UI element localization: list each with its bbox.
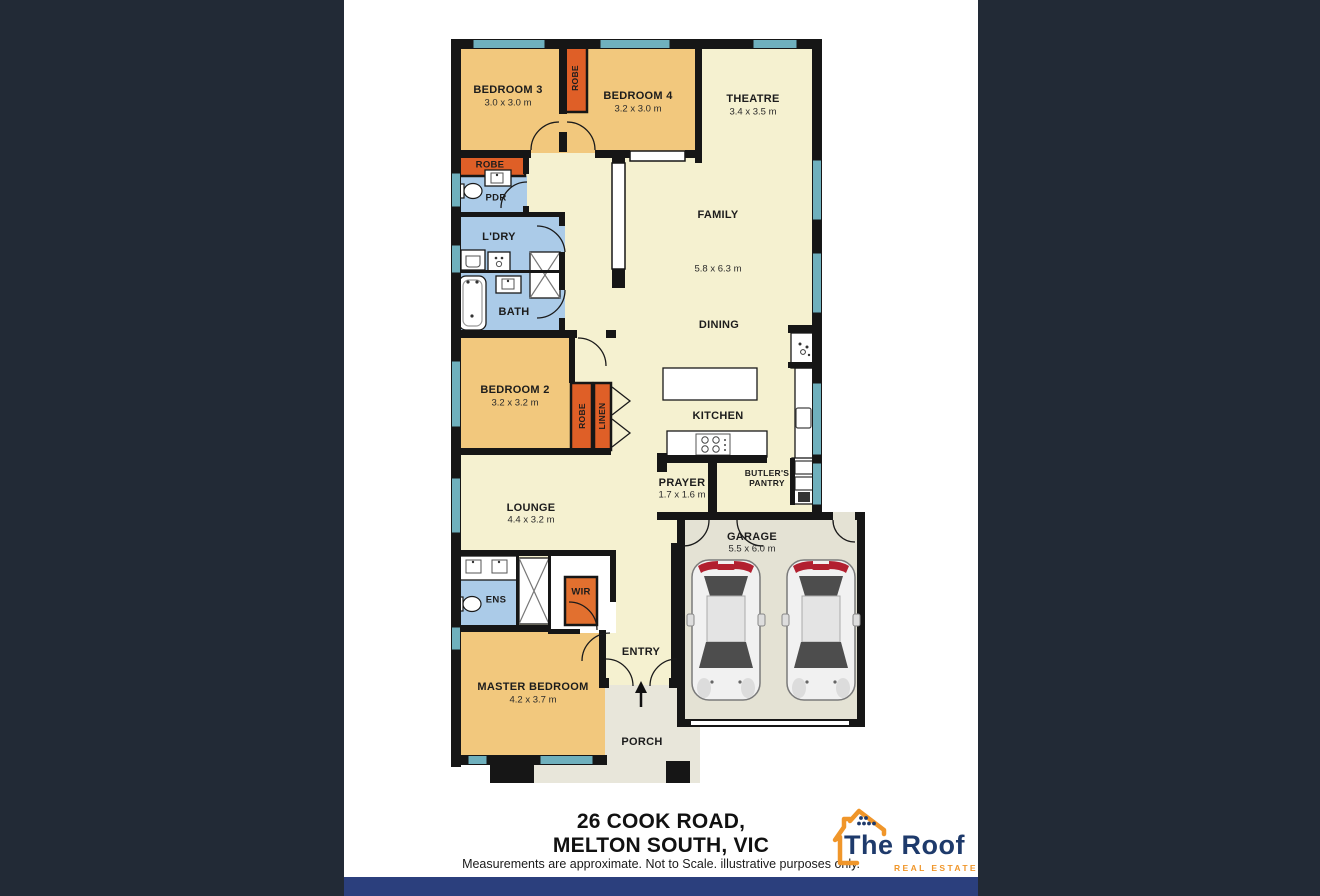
kitchen-side-counter [795,368,813,460]
window [600,40,670,49]
window [452,361,461,427]
floor-plan-screenshot: BEDROOM 3 3.0 x 3.0 m ROBE BEDROOM 4 3.2… [0,0,1320,896]
room-label-kitchen: KITCHEN [693,410,744,422]
floor-plan-page: BEDROOM 3 3.0 x 3.0 m ROBE BEDROOM 4 3.2… [344,0,978,896]
room-label-bath: BATH [499,306,530,318]
room-label-bedroom4: BEDROOM 4 [603,90,672,102]
room-dims-lounge: 4.4 x 3.2 m [508,515,555,526]
window [540,756,593,765]
closet-label-linen: LINEN [597,403,607,430]
room-label-lounge: LOUNGE [507,502,556,514]
closet-label-robe-bed2: ROBE [577,403,587,429]
room-dims-garage: 5.5 x 6.0 m [729,544,776,555]
room-dims-master-bedroom: 4.2 x 3.7 m [510,695,557,706]
address-line-2: MELTON SOUTH, VIC [553,834,769,858]
room-dims-bedroom3: 3.0 x 3.0 m [485,98,532,109]
address-line-1: 26 COOK ROAD, [577,810,745,834]
closet-wir-robe [565,577,597,625]
window [473,40,545,49]
window [753,40,797,49]
window [813,383,822,455]
room-label-bedroom3: BEDROOM 3 [473,84,542,96]
window [813,160,822,220]
room-label-entry: ENTRY [622,646,660,658]
room-label-wir: WIR [571,587,590,598]
room-dims-bedroom2: 3.2 x 3.2 m [492,398,539,409]
disclaimer-text: Measurements are approximate. Not to Sca… [462,857,860,871]
closet-label-robe-bed3: ROBE [570,65,580,91]
room-label-family: FAMILY [697,209,738,221]
room-label-pdr: PDR [486,193,507,204]
room-label-ens: ENS [486,595,506,606]
room-label-butlers-pantry: BUTLER'S PANTRY [734,468,800,488]
window [452,173,461,207]
room-master-bedroom [455,630,605,757]
room-label-master-bedroom: MASTER BEDROOM [477,681,588,693]
room-dims-bedroom4: 3.2 x 3.0 m [615,104,662,115]
room-label-porch: PORCH [621,736,662,748]
floor-plan-drawing [344,0,978,800]
room-label-theatre: THEATRE [726,93,779,105]
room-dims-family: 5.8 x 6.3 m [695,264,742,275]
room-dims-prayer: 1.7 x 1.6 m [659,490,706,501]
window [452,245,461,273]
logo-tagline: REAL ESTATE [894,863,978,873]
logo-name: The Roof [844,830,965,861]
window [452,478,461,533]
window [452,627,461,650]
room-label-laundry: L'DRY [482,231,516,243]
window [813,463,822,505]
room-label-dining: DINING [699,319,739,331]
garage-door [691,721,849,725]
car-icon [687,560,765,700]
room-label-bedroom2: BEDROOM 2 [480,384,549,396]
room-dims-theatre: 3.4 x 3.5 m [730,107,777,118]
car-icon [782,560,860,700]
closet-label-robe-hall: ROBE [476,160,505,171]
pdr-basin-icon [485,170,511,186]
agency-logo: The Roof REAL ESTATE [832,806,978,878]
window [468,756,487,765]
room-label-garage: GARAGE [727,531,777,543]
room-label-prayer: PRAYER [659,477,706,489]
window [813,253,822,313]
kitchen-island [663,368,757,400]
footer-accent-bar [344,877,978,896]
